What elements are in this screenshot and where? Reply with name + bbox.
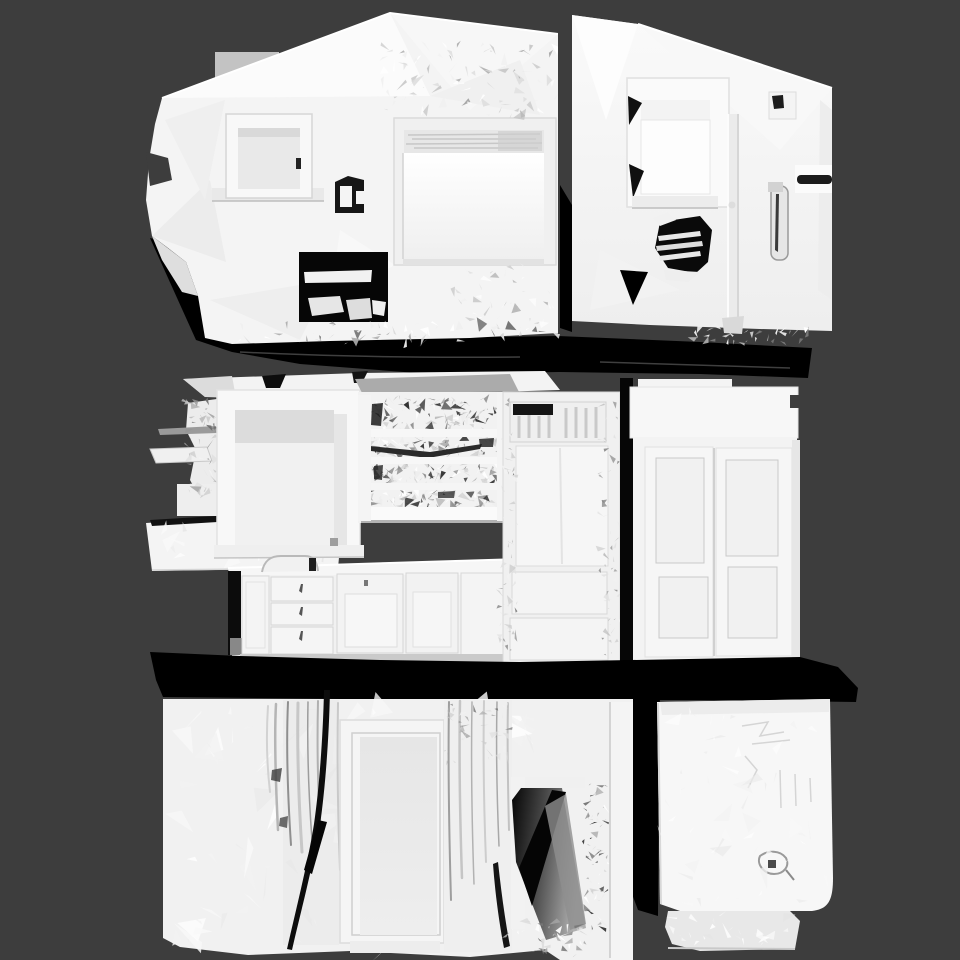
floor-top-attic [146, 10, 832, 378]
fridge-drawer-2 [510, 618, 608, 660]
shelf-board-3 [366, 483, 503, 490]
attic-right-window [627, 78, 729, 208]
wall-slot [795, 165, 832, 193]
wardrobe-cornice [630, 387, 798, 438]
wall-recess [299, 252, 388, 322]
refrigerator [500, 378, 633, 668]
attic-window [212, 114, 324, 201]
alcove-pillar [610, 702, 633, 960]
wardrobe-side-shade [792, 440, 800, 660]
shelf-board-1 [366, 429, 503, 437]
door-threshold [350, 941, 440, 953]
attic-window-pane-top [238, 128, 300, 137]
wardrobe-door-left [645, 447, 713, 657]
attic-window-pane [238, 128, 300, 189]
wall-panel [394, 118, 556, 265]
kitchen-window-top-band [235, 410, 334, 443]
drawer-stack [271, 577, 333, 654]
wall-bracket-inner [340, 186, 352, 207]
floor-bottom-ground [163, 686, 833, 960]
fridge-drawer-1 [512, 572, 607, 614]
shelf-board-2 [366, 457, 503, 464]
3d-viewport[interactable] [0, 0, 960, 960]
shelf-board-bottom [361, 507, 509, 520]
kitchen-window-pane [235, 443, 334, 545]
door-panel [360, 737, 437, 935]
mesh-scene [0, 0, 960, 960]
kitchen-cabinets [228, 571, 525, 666]
wall-handle [768, 182, 788, 260]
shelf-bracket [150, 447, 212, 463]
wardrobe [630, 379, 802, 663]
slab-gap-shadow [560, 185, 572, 332]
appliance-pedestal [665, 911, 800, 951]
fridge-top-slats [510, 402, 606, 442]
interior-door [340, 720, 444, 953]
kitchen-shelves [355, 374, 521, 523]
wardrobe-door-right [716, 448, 792, 656]
wall-vent [769, 92, 796, 119]
appliance-body [657, 699, 833, 911]
kitchen-window [214, 390, 364, 558]
panel-pane [403, 153, 544, 259]
attic-window-dark-speck [296, 158, 301, 169]
